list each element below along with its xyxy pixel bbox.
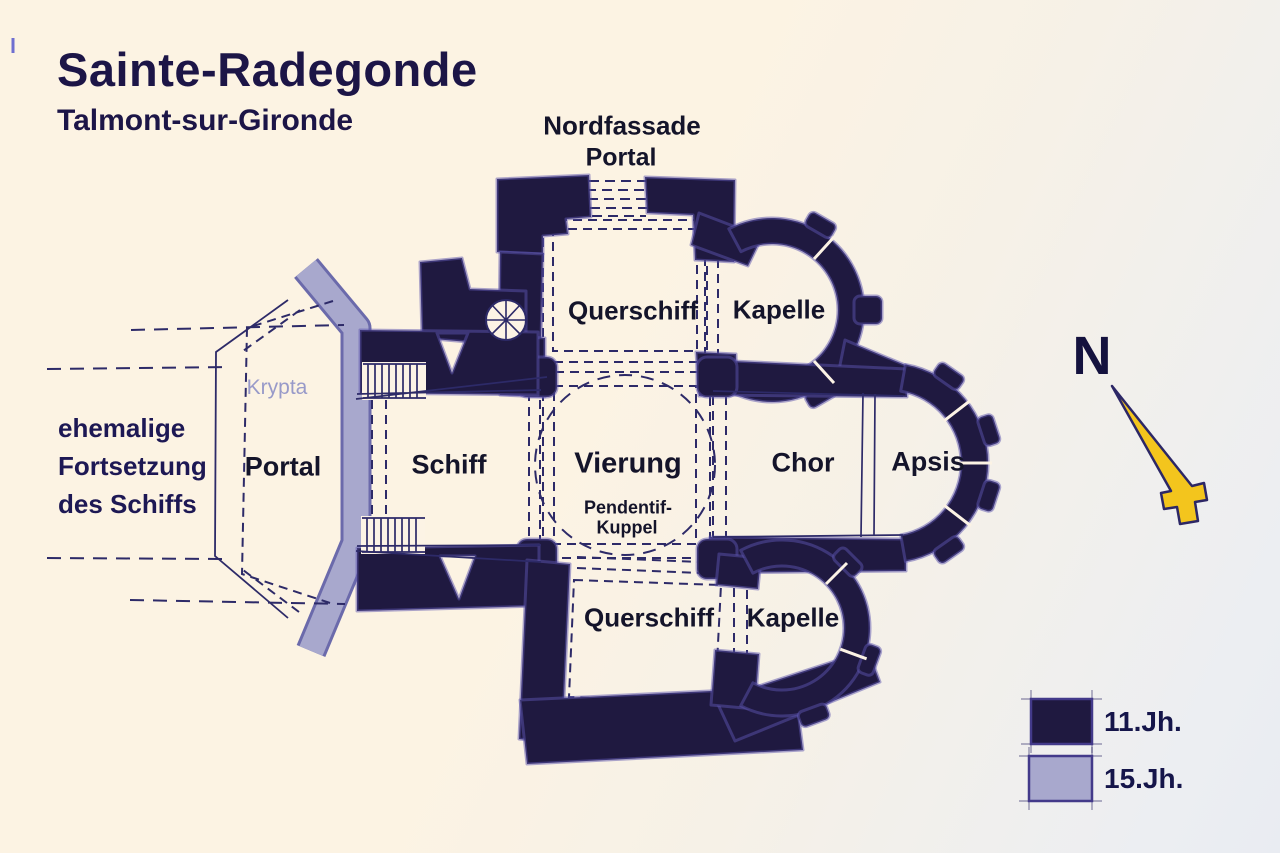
legend-swatches	[1019, 690, 1102, 810]
page-title: Sainte-Radegonde	[57, 42, 478, 97]
label-pendentif-line1: Pendentif-	[584, 498, 672, 519]
label-schiff: Schiff	[411, 450, 486, 481]
label-apsis: Apsis	[891, 447, 965, 478]
page-subtitle: Talmont-sur-Gironde	[57, 104, 478, 138]
annotation-line2: Fortsetzung	[58, 447, 207, 485]
header: Sainte-Radegonde Talmont-sur-Gironde	[57, 42, 478, 138]
label-nordfassade: Nordfassade	[543, 111, 701, 142]
label-portal-west: Portal	[245, 452, 322, 483]
annotation-former-nave: ehemalige Fortsetzung des Schiffs	[58, 409, 207, 523]
label-krypta: Krypta	[247, 376, 308, 400]
church-floor-plan-page: Sainte-Radegonde Talmont-sur-Gironde Nor…	[0, 0, 1280, 853]
annotation-line1: ehemalige	[58, 409, 207, 447]
label-nordfassade-portal: Portal	[586, 144, 657, 173]
label-kapelle-nord: Kapelle	[733, 295, 826, 326]
label-chor: Chor	[772, 448, 835, 479]
spiral-stair	[486, 300, 526, 340]
label-vierung: Vierung	[574, 448, 681, 481]
label-querschiff-sued: Querschiff	[584, 603, 714, 634]
legend-label-11jh: 11.Jh.	[1104, 706, 1182, 738]
label-pendentif-line2: Kuppel	[597, 518, 658, 539]
annotation-line3: des Schiffs	[58, 485, 207, 523]
label-kapelle-sued: Kapelle	[747, 603, 840, 634]
label-querschiff-nord: Querschiff	[568, 296, 698, 327]
legend-swatch-11jh	[1031, 699, 1092, 744]
legend-label-15jh: 15.Jh.	[1104, 763, 1183, 795]
compass-arrow-icon	[1112, 386, 1207, 524]
compass-north-label: N	[1073, 325, 1112, 387]
legend-swatch-15jh	[1029, 756, 1092, 801]
